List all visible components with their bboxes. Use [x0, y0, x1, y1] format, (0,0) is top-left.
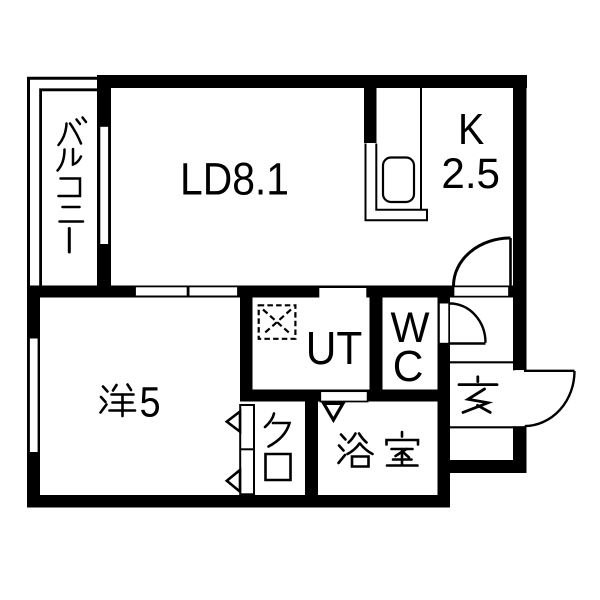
- svg-text:5: 5: [140, 378, 161, 426]
- svg-text:K: K: [458, 105, 484, 154]
- svg-text:2.5: 2.5: [441, 150, 500, 198]
- svg-text:UT: UT: [306, 322, 363, 374]
- svg-text:LD8.1: LD8.1: [180, 154, 289, 205]
- svg-text:C: C: [393, 342, 424, 391]
